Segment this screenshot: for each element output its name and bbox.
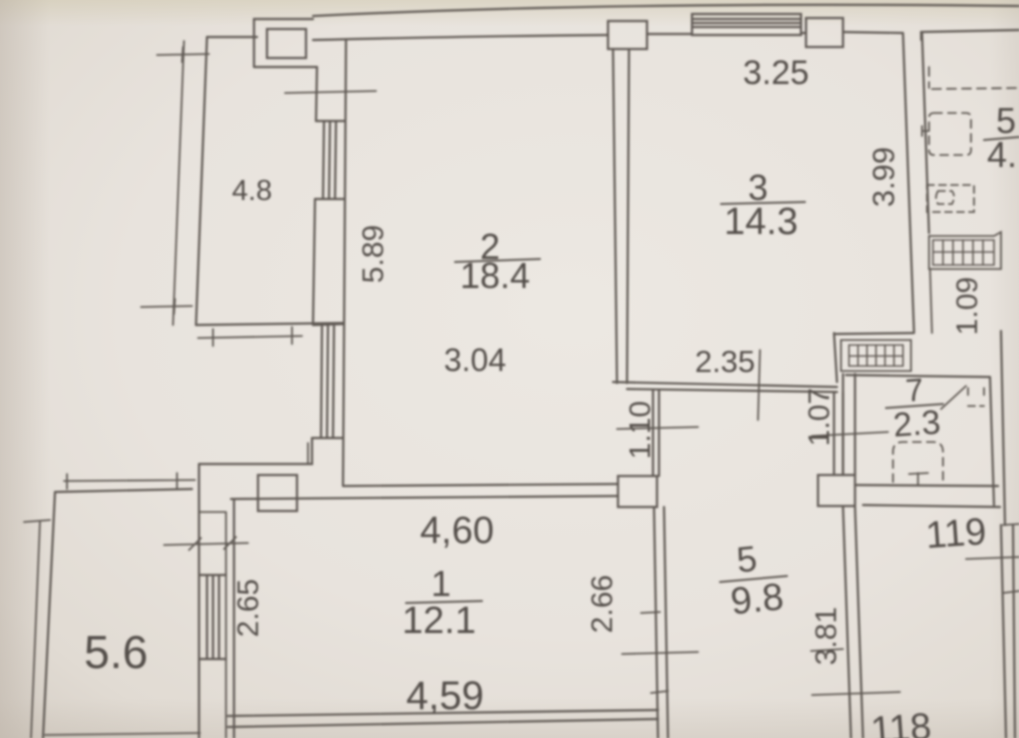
svg-text:1.10: 1.10 xyxy=(624,401,657,459)
svg-text:2.35: 2.35 xyxy=(695,344,755,379)
svg-text:5: 5 xyxy=(735,538,759,581)
svg-text:1.09: 1.09 xyxy=(951,277,984,335)
svg-text:14.3: 14.3 xyxy=(724,201,798,243)
svg-text:9.8: 9.8 xyxy=(729,576,786,623)
svg-text:5.89: 5.89 xyxy=(357,225,390,283)
svg-text:12.1: 12.1 xyxy=(402,600,476,642)
svg-text:2.3: 2.3 xyxy=(892,403,942,444)
svg-text:119: 119 xyxy=(924,511,987,557)
svg-text:4,59: 4,59 xyxy=(406,674,484,718)
svg-text:3.25: 3.25 xyxy=(743,54,809,92)
svg-text:4,60: 4,60 xyxy=(420,510,494,552)
svg-text:2.65: 2.65 xyxy=(232,579,265,637)
svg-text:5.6: 5.6 xyxy=(84,626,148,678)
svg-text:3.81: 3.81 xyxy=(810,607,843,665)
svg-text:3.99: 3.99 xyxy=(866,147,901,207)
svg-text:1: 1 xyxy=(431,563,451,604)
svg-text:7: 7 xyxy=(904,371,924,408)
svg-text:4.8: 4.8 xyxy=(232,175,272,207)
svg-text:118: 118 xyxy=(869,706,932,738)
svg-text:3.04: 3.04 xyxy=(444,342,506,378)
svg-text:2.66: 2.66 xyxy=(586,575,619,633)
svg-text:1.07: 1.07 xyxy=(803,388,836,446)
